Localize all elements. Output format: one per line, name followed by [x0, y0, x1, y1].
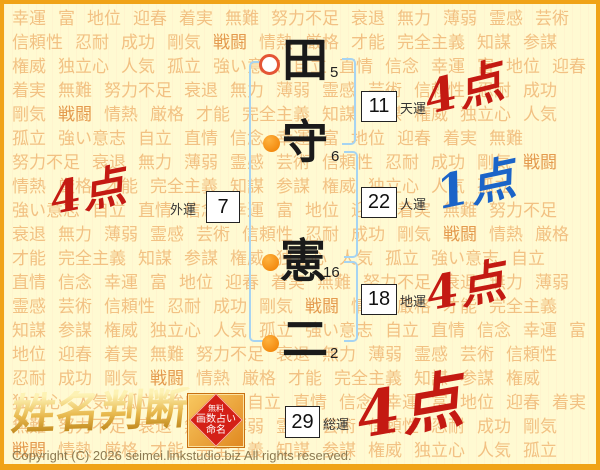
- background-word: 無難: [150, 344, 184, 366]
- stroke-count: 2: [330, 345, 338, 362]
- seal-line: 無料: [208, 404, 224, 413]
- background-word: 戦闘: [58, 104, 92, 126]
- background-word: 着実: [12, 80, 46, 102]
- background-word: 参謀: [184, 248, 218, 270]
- free-naming-seal[interactable]: 無料 画数占い 命名: [187, 393, 245, 448]
- character-marker-open[interactable]: [259, 54, 280, 75]
- background-word: 無力: [397, 8, 431, 30]
- background-word: 参謀: [460, 368, 494, 390]
- background-word: 権威: [506, 368, 540, 390]
- background-word: 迎春: [552, 56, 586, 78]
- souun-value-box: 29: [285, 406, 320, 438]
- background-word: 自立: [511, 248, 545, 270]
- background-word: 信念: [58, 272, 92, 294]
- background-word: 迎春: [397, 128, 431, 150]
- background-word: 富: [276, 200, 293, 222]
- background-word: 地位: [305, 200, 339, 222]
- stroke-count: 16: [323, 264, 340, 281]
- souun-score-mark: 4点: [351, 368, 467, 448]
- seal-line: 画数占い: [196, 414, 236, 426]
- background-word: 成功: [121, 32, 155, 54]
- background-word: 信念: [477, 320, 511, 342]
- name-character: 守: [282, 119, 328, 165]
- background-word: 幸運: [104, 272, 138, 294]
- background-word: 参謀: [58, 320, 92, 342]
- background-word: 知謀: [138, 248, 172, 270]
- background-word: 芸術: [460, 344, 494, 366]
- background-word: 権威: [104, 320, 138, 342]
- jinun-value-box: 22: [361, 187, 397, 218]
- background-word: 直情: [431, 320, 465, 342]
- gaiun-label: 外運: [170, 199, 196, 218]
- background-word: 着実: [443, 128, 477, 150]
- souun-label: 総運: [323, 414, 349, 433]
- background-word: 自立: [247, 392, 281, 414]
- tenun-bracket: [342, 58, 356, 145]
- background-word: 自立: [385, 320, 419, 342]
- background-word: 孤立: [523, 440, 557, 462]
- name-character: 二: [282, 316, 328, 362]
- background-word: 独立心: [150, 320, 201, 342]
- background-word: 努力不足: [104, 80, 172, 102]
- background-word: 孤立: [167, 56, 201, 78]
- background-word: 芸術: [196, 224, 230, 246]
- background-word: 成功: [523, 80, 557, 102]
- background-word: 芸術: [58, 296, 92, 318]
- tenun-label: 天運: [400, 98, 426, 117]
- background-word: 薄弱: [184, 152, 218, 174]
- background-word: 信頼性: [12, 32, 63, 54]
- background-word: 才能: [196, 104, 230, 126]
- background-word: 知謀: [12, 320, 46, 342]
- background-word: 無力: [138, 152, 172, 174]
- background-word: 厳格: [242, 368, 276, 390]
- background-word: 幸運: [523, 320, 557, 342]
- background-word: 地位: [87, 8, 121, 30]
- background-word: 剛気: [523, 416, 557, 438]
- background-word: 無難: [58, 80, 92, 102]
- background-word: 情熱: [196, 368, 230, 390]
- background-word: 厳格: [150, 104, 184, 126]
- jinun-label: 人運: [400, 194, 426, 213]
- background-word: 迎春: [133, 8, 167, 30]
- background-word: 人気: [121, 56, 155, 78]
- background-word: 参謀: [276, 176, 310, 198]
- background-word: 権威: [12, 56, 46, 78]
- stroke-count: 5: [330, 64, 338, 81]
- background-word: 情熱: [104, 104, 138, 126]
- jinun-bracket: [344, 151, 358, 258]
- background-word: 成功: [477, 416, 511, 438]
- background-word: 独立心: [58, 56, 109, 78]
- background-word: 霊感: [489, 8, 523, 30]
- background-word: 孤立: [12, 128, 46, 150]
- background-word: 剛気: [12, 104, 46, 126]
- background-word: 無力: [58, 224, 92, 246]
- background-word: 人気: [523, 104, 557, 126]
- background-word: 知謀: [477, 32, 511, 54]
- background-word: 才能: [351, 32, 385, 54]
- background-word: 情熱: [12, 176, 46, 198]
- name-character: 田: [282, 37, 328, 83]
- gaiun-value-box: 7: [206, 191, 240, 223]
- background-word: 芸術: [535, 8, 569, 30]
- background-word: 強い意志: [58, 128, 126, 150]
- background-word: 剛気: [167, 32, 201, 54]
- background-word: 参謀: [523, 32, 557, 54]
- background-word: 富: [58, 8, 75, 30]
- background-word: 人気: [477, 440, 511, 462]
- background-word: 忍耐: [12, 368, 46, 390]
- name-character: 憲: [280, 238, 326, 284]
- background-word: 着実: [552, 392, 586, 414]
- background-word: 霊感: [150, 224, 184, 246]
- background-word: 信頼性: [506, 344, 557, 366]
- background-word: 努力不足: [271, 8, 339, 30]
- stroke-count: 6: [331, 148, 339, 165]
- chiun-label: 地運: [400, 291, 426, 310]
- background-word: 直情: [184, 128, 218, 150]
- background-word: 信頼性: [104, 296, 155, 318]
- background-word: 完全主義: [397, 32, 465, 54]
- background-word: 孤立: [385, 248, 419, 270]
- background-word: 戦闘: [213, 32, 247, 54]
- background-word: 完全主義: [58, 248, 126, 270]
- background-word: 薄弱: [104, 224, 138, 246]
- character-marker-filled[interactable]: [263, 135, 280, 152]
- background-word: 薄弱: [368, 344, 402, 366]
- background-word: 忍耐: [75, 32, 109, 54]
- background-word: 独立心: [414, 440, 465, 462]
- character-marker-filled[interactable]: [262, 254, 279, 271]
- background-word: 自立: [138, 128, 172, 150]
- background-word: 忍耐: [385, 152, 419, 174]
- background-word: 人気: [213, 320, 247, 342]
- background-word: 努力不足: [196, 344, 264, 366]
- background-word: 富: [150, 272, 167, 294]
- background-word: 無難: [489, 128, 523, 150]
- background-word: 地位: [351, 128, 385, 150]
- background-word: 衰退: [351, 8, 385, 30]
- background-word: 才能: [288, 368, 322, 390]
- background-word: 直情: [12, 272, 46, 294]
- background-word: 幸運: [12, 8, 46, 30]
- background-word: 迎春: [58, 344, 92, 366]
- site-logo[interactable]: 姓名判断: [9, 387, 190, 437]
- seal-text: 無料 画数占い 命名: [188, 394, 244, 447]
- gaiun-bracket: [249, 61, 273, 342]
- background-word: 迎春: [506, 392, 540, 414]
- character-marker-filled[interactable]: [262, 335, 279, 352]
- background-word: 地位: [179, 272, 213, 294]
- tenun-value-box: 11: [361, 91, 397, 122]
- background-word: 無難: [225, 8, 259, 30]
- background-word: 剛気: [397, 224, 431, 246]
- copyright-notice: Copyright (C) 2026 seimei.linkstudio.biz…: [12, 448, 352, 463]
- seimei-handan-result-page: 幸運富地位迎春着実無難努力不足衰退無力薄弱霊感芸術信頼性忍耐成功剛気戦闘情熱厳格…: [0, 0, 600, 470]
- background-word: 信念: [385, 56, 419, 78]
- background-word: 衰退: [184, 80, 218, 102]
- background-word: 地位: [460, 392, 494, 414]
- seal-line: 命名: [206, 425, 226, 437]
- background-word: 情熱: [489, 224, 523, 246]
- background-word: 衰退: [12, 224, 46, 246]
- background-word: 薄弱: [443, 8, 477, 30]
- background-word: 忍耐: [167, 296, 201, 318]
- background-word: 霊感: [414, 344, 448, 366]
- chiun-value-box: 18: [361, 284, 397, 315]
- background-word: 厳格: [535, 224, 569, 246]
- background-word: 直情: [138, 200, 172, 222]
- background-word: 才能: [12, 248, 46, 270]
- background-word: 霊感: [12, 296, 46, 318]
- background-word: 戦闘: [523, 152, 557, 174]
- background-word: 地位: [12, 344, 46, 366]
- background-word: 地位: [506, 56, 540, 78]
- background-word: 薄弱: [535, 272, 569, 294]
- background-word: 着実: [104, 344, 138, 366]
- background-word: 成功: [213, 296, 247, 318]
- chiun-score-mark: 4点: [422, 257, 509, 317]
- chiun-bracket: [344, 261, 358, 342]
- background-word: 戦闘: [443, 224, 477, 246]
- background-word: 着実: [179, 8, 213, 30]
- background-word: 富: [569, 320, 586, 342]
